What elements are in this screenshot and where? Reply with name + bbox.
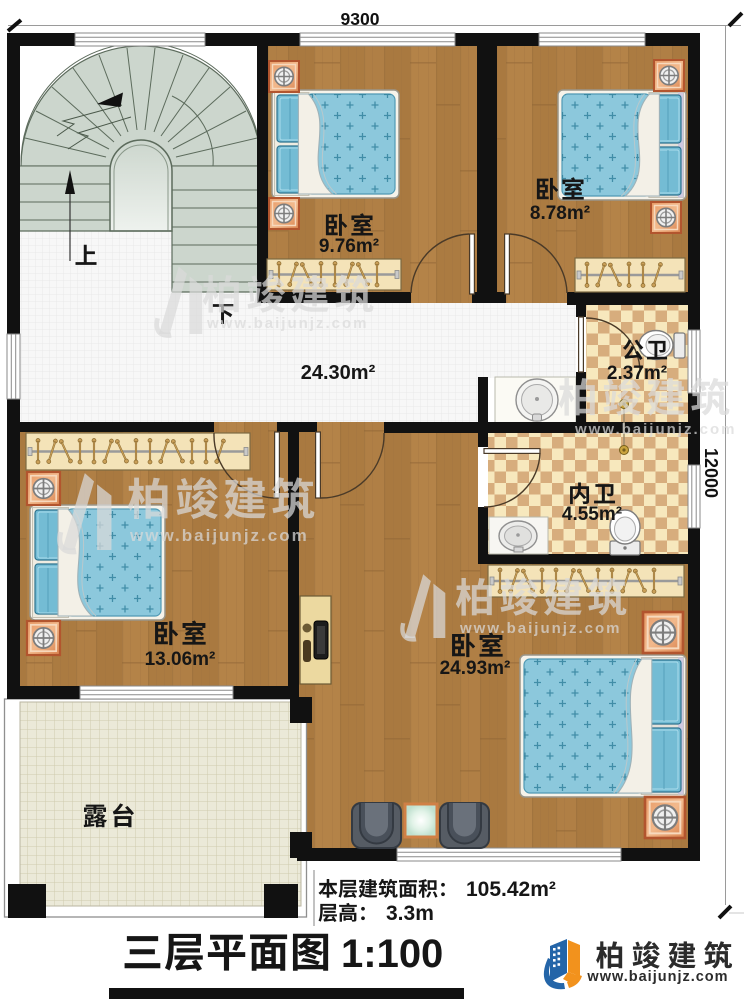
svg-text:www.baijunjz.com: www.baijunjz.com: [459, 620, 621, 637]
svg-text:24.93m²: 24.93m²: [440, 658, 511, 679]
svg-text:www.baijunjz.com: www.baijunjz.com: [574, 421, 736, 438]
svg-text:8.78m²: 8.78m²: [530, 203, 590, 224]
svg-text:www.baijunjz.com: www.baijunjz.com: [206, 315, 368, 332]
svg-text:4.55m²: 4.55m²: [562, 504, 622, 525]
svg-text:13.06m²: 13.06m²: [145, 649, 216, 670]
svg-text:www.baijunjz.com: www.baijunjz.com: [129, 526, 309, 545]
svg-text:9300: 9300: [341, 9, 380, 29]
svg-text:105.42m²: 105.42m²: [466, 878, 556, 901]
svg-text:24.30m²: 24.30m²: [301, 362, 376, 384]
svg-text:1:100: 1:100: [341, 932, 443, 976]
svg-text:3.3m: 3.3m: [386, 902, 434, 925]
svg-text:12000: 12000: [701, 448, 721, 498]
svg-text:www.baijunjz.com: www.baijunjz.com: [586, 969, 728, 985]
svg-text:2.37m²: 2.37m²: [607, 363, 667, 384]
svg-text:9.76m²: 9.76m²: [319, 236, 379, 257]
